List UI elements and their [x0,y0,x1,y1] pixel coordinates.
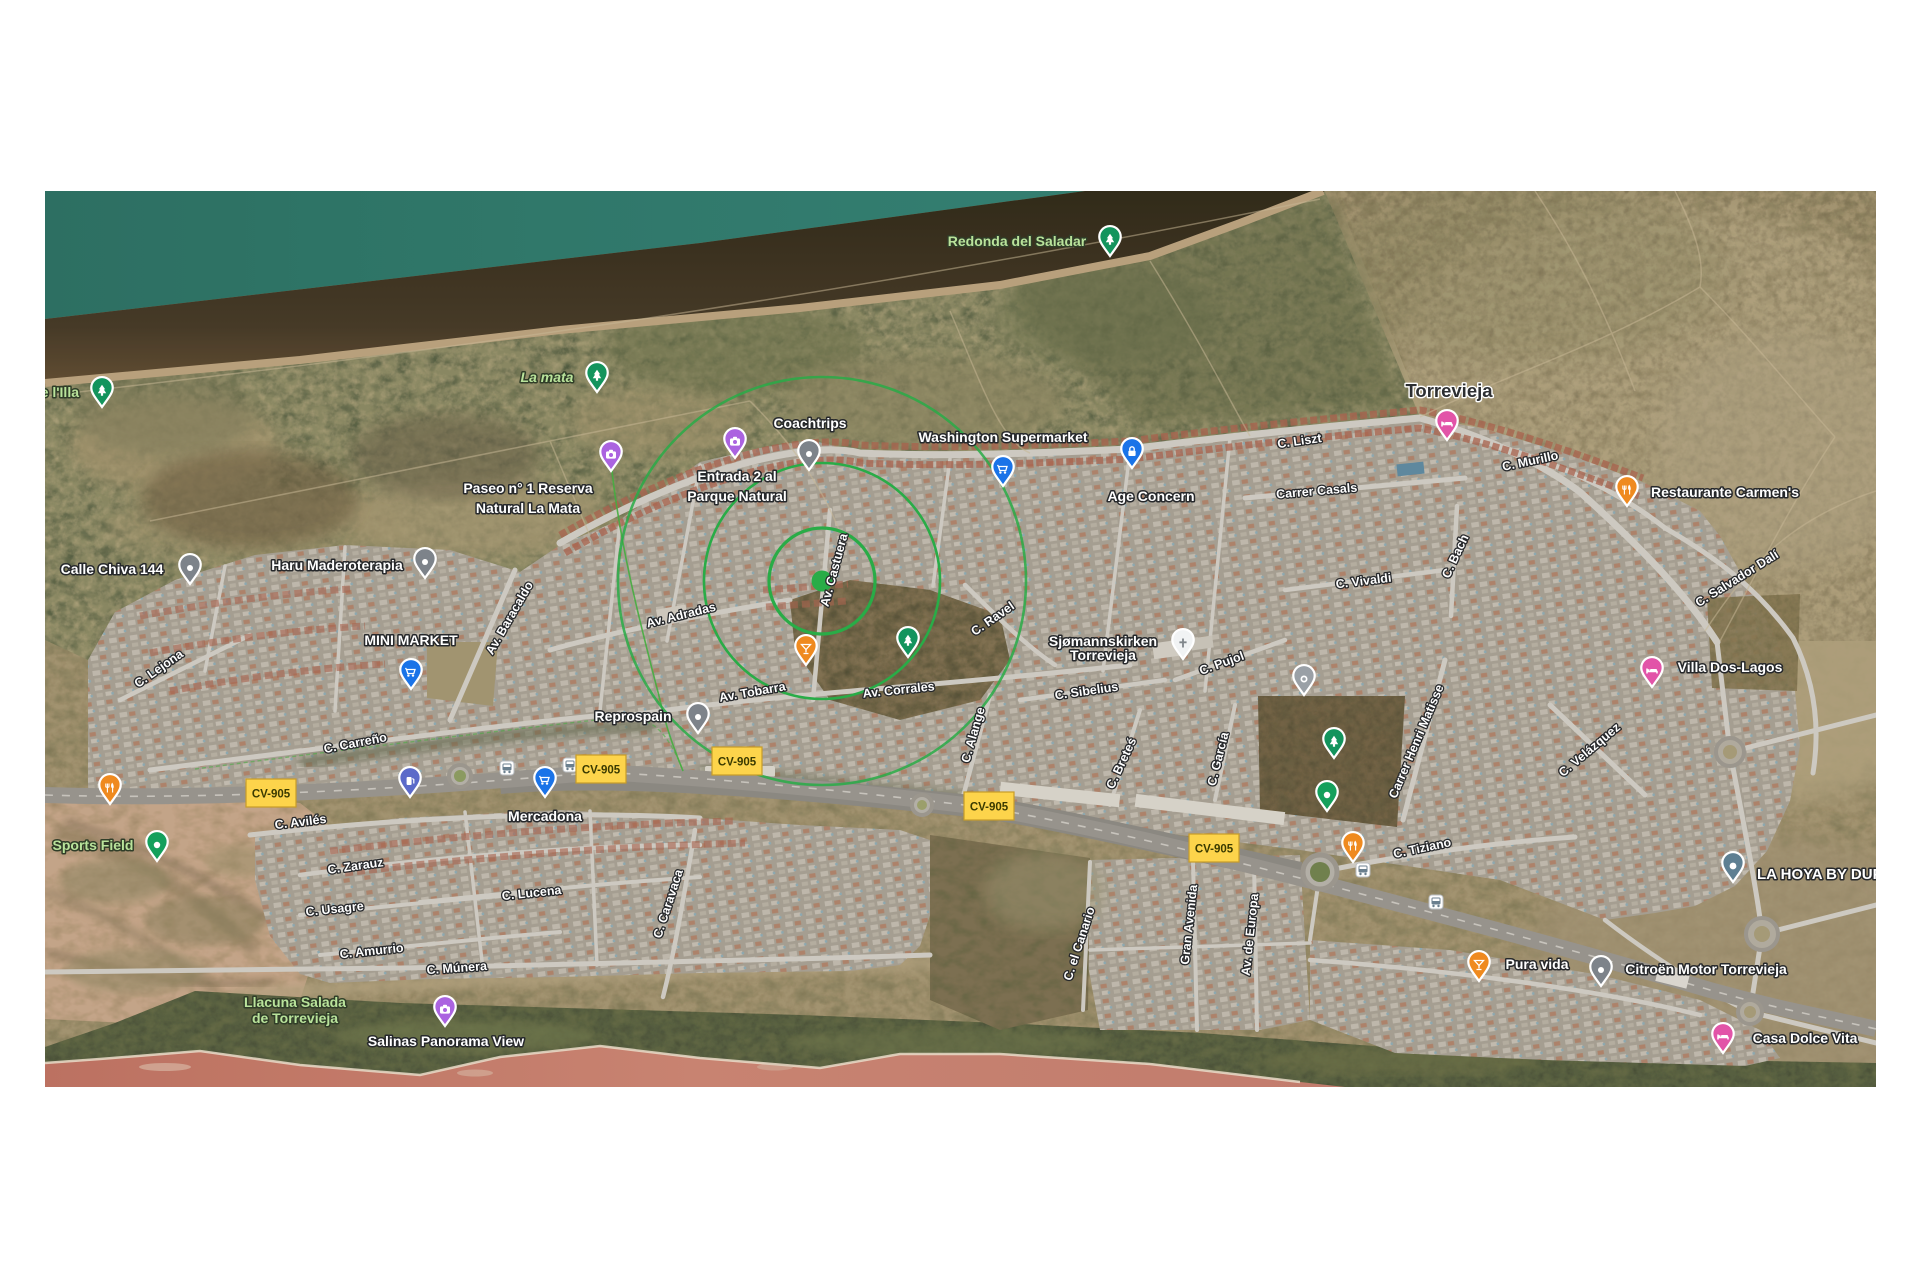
svg-text:La mata: La mata [521,369,574,385]
svg-text:Torrevieja: Torrevieja [1405,380,1493,401]
svg-text:Coachtrips: Coachtrips [773,415,846,431]
svg-text:e l'Illa: e l'Illa [45,384,79,400]
svg-text:CV-905: CV-905 [582,765,621,777]
svg-text:Pura vida: Pura vida [1505,956,1568,972]
svg-text:Parque Natural: Parque Natural [687,488,787,504]
svg-text:MINI MARKET: MINI MARKET [364,632,458,648]
svg-text:Entrada 2 al: Entrada 2 al [697,468,776,484]
svg-text:Casa Dolce Vita: Casa Dolce Vita [1753,1030,1858,1046]
svg-text:Mercadona: Mercadona [508,808,582,824]
svg-text:Salinas Panorama View: Salinas Panorama View [368,1033,524,1049]
svg-text:Torrevieja: Torrevieja [1070,647,1136,663]
svg-text:CV-905: CV-905 [718,757,757,769]
svg-text:Citroën Motor Torrevieja: Citroën Motor Torrevieja [1625,961,1787,977]
svg-text:CV-905: CV-905 [970,802,1009,814]
svg-text:Restaurante Carmen's: Restaurante Carmen's [1651,484,1799,500]
svg-text:LA HOYA BY DUPLEX: LA HOYA BY DUPLEX [1757,866,1876,883]
svg-text:CV-905: CV-905 [252,789,291,801]
svg-text:CV-905: CV-905 [1195,844,1234,856]
svg-text:Calle Chiva 144: Calle Chiva 144 [61,561,164,577]
svg-text:Sports Field: Sports Field [53,837,134,853]
svg-text:Haru Maderoterapia: Haru Maderoterapia [271,557,403,573]
svg-text:Llacuna Salada: Llacuna Salada [244,994,346,1010]
svg-text:Paseo n° 1 Reserva: Paseo n° 1 Reserva [463,480,593,496]
svg-text:de Torrevieja: de Torrevieja [252,1010,338,1026]
svg-text:Age Concern: Age Concern [1107,488,1194,504]
svg-text:Natural La Mata: Natural La Mata [476,500,580,516]
svg-text:Reprospain: Reprospain [594,708,671,724]
svg-text:Redonda del Saladar: Redonda del Saladar [948,233,1087,249]
svg-text:Washington Supermarket: Washington Supermarket [918,429,1087,445]
svg-text:Villa Dos-Lagos: Villa Dos-Lagos [1678,659,1783,675]
